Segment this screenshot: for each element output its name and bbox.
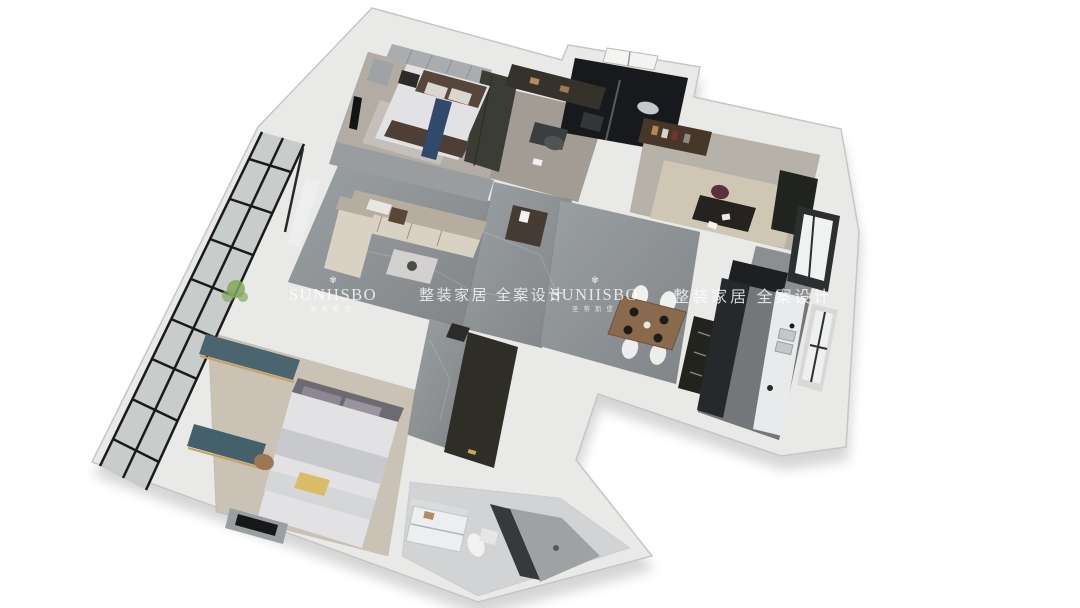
faucet xyxy=(790,324,795,329)
table-tray xyxy=(407,261,417,271)
paper xyxy=(722,213,731,220)
shower-drain xyxy=(553,545,559,551)
centerpiece xyxy=(644,322,651,329)
kitchen-item xyxy=(767,385,773,391)
plate xyxy=(630,308,639,317)
plate xyxy=(624,326,633,335)
plate xyxy=(654,334,663,343)
plate xyxy=(660,316,669,325)
floor-plan-render: ✾ SUNIISBO 圣蒂斯堡 整装家居 全案设计 ✾ SUNIISBO 圣蒂斯… xyxy=(0,0,1080,608)
apartment-3d-plan xyxy=(0,0,1080,608)
